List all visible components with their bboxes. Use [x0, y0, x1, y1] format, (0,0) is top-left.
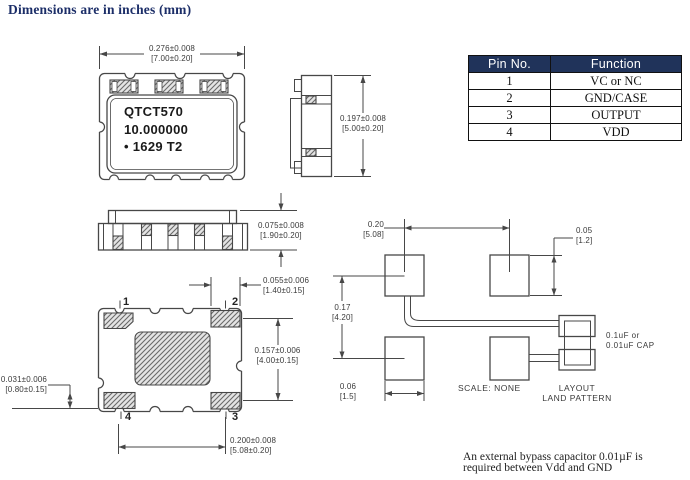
function-cell: VC or NC — [551, 73, 682, 90]
marking-frequency: 10.000000 — [124, 121, 236, 139]
table-header-row: Pin No. Function — [469, 56, 682, 73]
pin-no-cell: 1 — [469, 73, 551, 90]
pin-2-label: 2 — [229, 296, 241, 308]
pin-no-header: Pin No. — [469, 56, 551, 73]
dim-land-span-v-label: 0.17[4.20] — [329, 303, 356, 322]
dim-body-depth-label: 0.197±0.008[5.00±0.20] — [337, 114, 389, 133]
pin-1-label: 1 — [120, 296, 132, 308]
function-cell: GND/CASE — [551, 90, 682, 107]
package-side-view — [291, 76, 332, 177]
function-cell: VDD — [551, 124, 682, 141]
land-pattern-caption: LAYOUT LAND PATTERN — [538, 384, 616, 403]
table-row: 1 VC or NC — [469, 73, 682, 90]
pin-4-label: 4 — [122, 411, 134, 423]
scale-label: SCALE: NONE — [458, 384, 521, 394]
pin-no-cell: 3 — [469, 107, 551, 124]
pin-function-table: Pin No. Function 1 VC or NC 2 GND/CASE 3… — [468, 55, 682, 141]
dim-land-pad-height-label: 0.05[1.2] — [576, 226, 606, 245]
dim-land-pad-height — [530, 238, 573, 296]
mechanical-drawing-page: Dimensions are in inches (mm) — [0, 0, 690, 480]
land-pattern — [333, 219, 595, 380]
package-marking: QTCT570 10.000000 • 1629 T2 — [124, 103, 236, 156]
cap-value-label: 0.1uF or 0.01uF CAP — [606, 331, 655, 350]
bypass-capacitor-note: An external bypass capacitor 0.01µF is r… — [463, 452, 663, 474]
marking-model: QTCT570 — [124, 103, 236, 121]
bypass-capacitor — [559, 316, 595, 371]
dim-body-height-label: 0.075±0.008[1.90±0.20] — [256, 221, 306, 240]
pin-no-cell: 2 — [469, 90, 551, 107]
dim-pad-span-h-label: 0.200±0.008[5.08±0.20] — [230, 436, 280, 455]
marking-datecode: • 1629 T2 — [124, 138, 236, 156]
dim-body-width-label: 0.276±0.008[7.00±0.20] — [144, 44, 200, 63]
function-header: Function — [551, 56, 682, 73]
dim-pad-width-label: 0.055±0.006[1.40±0.15] — [263, 276, 315, 295]
dim-pad-span-h — [119, 417, 226, 454]
table-row: 4 VDD — [469, 124, 682, 141]
dim-land-pad-width — [385, 381, 424, 401]
dim-land-span-h — [384, 226, 510, 231]
package-front-view — [99, 211, 248, 251]
table-row: 2 GND/CASE — [469, 90, 682, 107]
bottom-center-pad — [135, 332, 210, 385]
top-view-pads — [110, 80, 228, 93]
dim-pad-span-v-label: 0.157±0.006[4.00±0.15] — [251, 346, 304, 365]
pin-no-cell: 4 — [469, 124, 551, 141]
function-cell: OUTPUT — [551, 107, 682, 124]
dim-pad-height-label: 0.031±0.006[0.80±0.15] — [0, 375, 47, 394]
dim-land-span-h-label: 0.20[5.08] — [357, 220, 384, 239]
table-row: 3 OUTPUT — [469, 107, 682, 124]
dim-land-pad-width-label: 0.06[1.5] — [335, 382, 361, 401]
pin-3-label: 3 — [229, 411, 241, 423]
package-bottom-view — [97, 301, 242, 420]
